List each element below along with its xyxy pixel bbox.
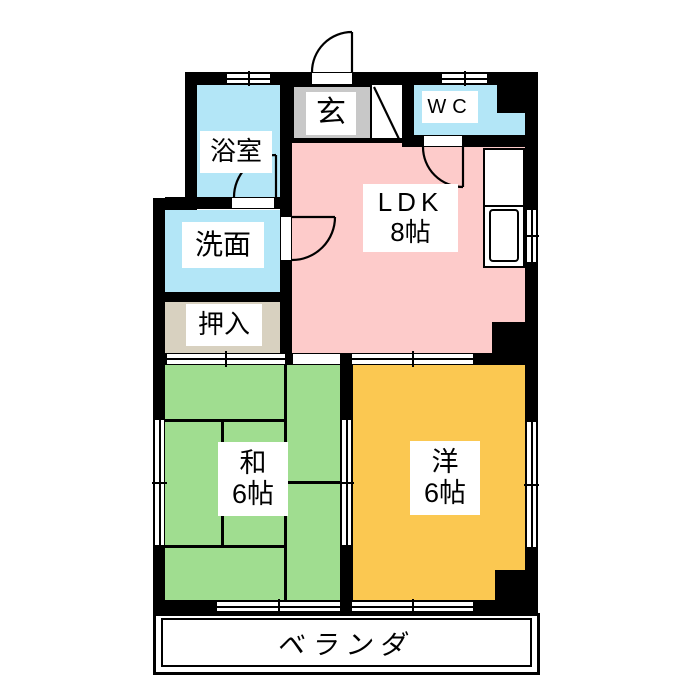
veranda-area: ベランダ bbox=[153, 613, 540, 675]
western-label-text: 洋 bbox=[432, 447, 459, 478]
wall-wc-corner-block bbox=[497, 85, 525, 113]
window-western-right bbox=[527, 422, 536, 547]
wall-western-pillar bbox=[495, 570, 525, 600]
wall-ldk-notch bbox=[492, 322, 525, 353]
room-label-japanese: 和 6帖 bbox=[218, 442, 288, 516]
ldk-label-text: LDK bbox=[378, 188, 444, 218]
room-label-washroom: 洗面 bbox=[182, 222, 264, 268]
closet-label-text: 押入 bbox=[198, 310, 250, 340]
veranda-label-text: ベランダ bbox=[275, 623, 418, 662]
room-label-western: 洋 6帖 bbox=[410, 441, 480, 515]
counter-divider-line bbox=[485, 205, 523, 207]
veranda-railing: ベランダ bbox=[161, 618, 532, 667]
entrance-door-arc bbox=[312, 32, 352, 72]
wall-bottom bbox=[153, 600, 538, 613]
entrance-step-area bbox=[372, 85, 402, 140]
wc-label-text: WC bbox=[427, 96, 472, 119]
window-ldk-right bbox=[527, 210, 536, 262]
doorway-washroom bbox=[281, 217, 291, 260]
sliding-door-japanese-western bbox=[342, 420, 351, 545]
room-label-wc: WC bbox=[422, 91, 478, 123]
window-bath-top bbox=[227, 74, 270, 83]
doorway-wc bbox=[424, 136, 462, 146]
sliding-door-closet bbox=[167, 354, 285, 364]
japanese-label-text: 和 bbox=[240, 448, 267, 479]
sliding-door-veranda-western bbox=[352, 602, 473, 611]
sliding-door-ldk-western bbox=[352, 354, 473, 364]
wall-left-lower bbox=[153, 198, 165, 613]
bath-label-text: 浴室 bbox=[210, 137, 262, 167]
room-label-closet: 押入 bbox=[186, 304, 262, 346]
wall-washroom-closet bbox=[165, 292, 280, 302]
japanese-size-text: 6帖 bbox=[232, 479, 274, 510]
wall-wc-bottom bbox=[402, 135, 525, 147]
doorway-entrance bbox=[312, 73, 352, 84]
kitchen-sink bbox=[489, 209, 519, 262]
tatami-line bbox=[165, 545, 285, 548]
doorway-bath bbox=[232, 198, 274, 208]
floor-plan: 浴室 玄 WC 洗面 押入 LDK 8帖 和 6帖 洋 6帖 ベランダ bbox=[0, 0, 700, 700]
entrance-label-text: 玄 bbox=[316, 96, 346, 131]
wall-entrance-edge bbox=[292, 140, 402, 143]
tatami-line bbox=[165, 419, 285, 422]
room-label-entrance: 玄 bbox=[306, 92, 356, 135]
window-japanese-left bbox=[155, 420, 164, 545]
western-size-text: 6帖 bbox=[424, 478, 466, 509]
washroom-label-text: 洗面 bbox=[195, 229, 251, 261]
room-wc-floor-ext bbox=[497, 113, 525, 135]
room-label-ldk: LDK 8帖 bbox=[363, 184, 458, 252]
tatami-line bbox=[285, 481, 340, 484]
ldk-size-text: 8帖 bbox=[390, 218, 430, 248]
window-wc-top bbox=[442, 74, 487, 83]
room-label-bath: 浴室 bbox=[200, 131, 272, 173]
opening-ldk-japanese bbox=[293, 354, 340, 364]
sliding-door-veranda-japanese bbox=[217, 602, 340, 611]
wall-left-upper bbox=[185, 72, 197, 210]
